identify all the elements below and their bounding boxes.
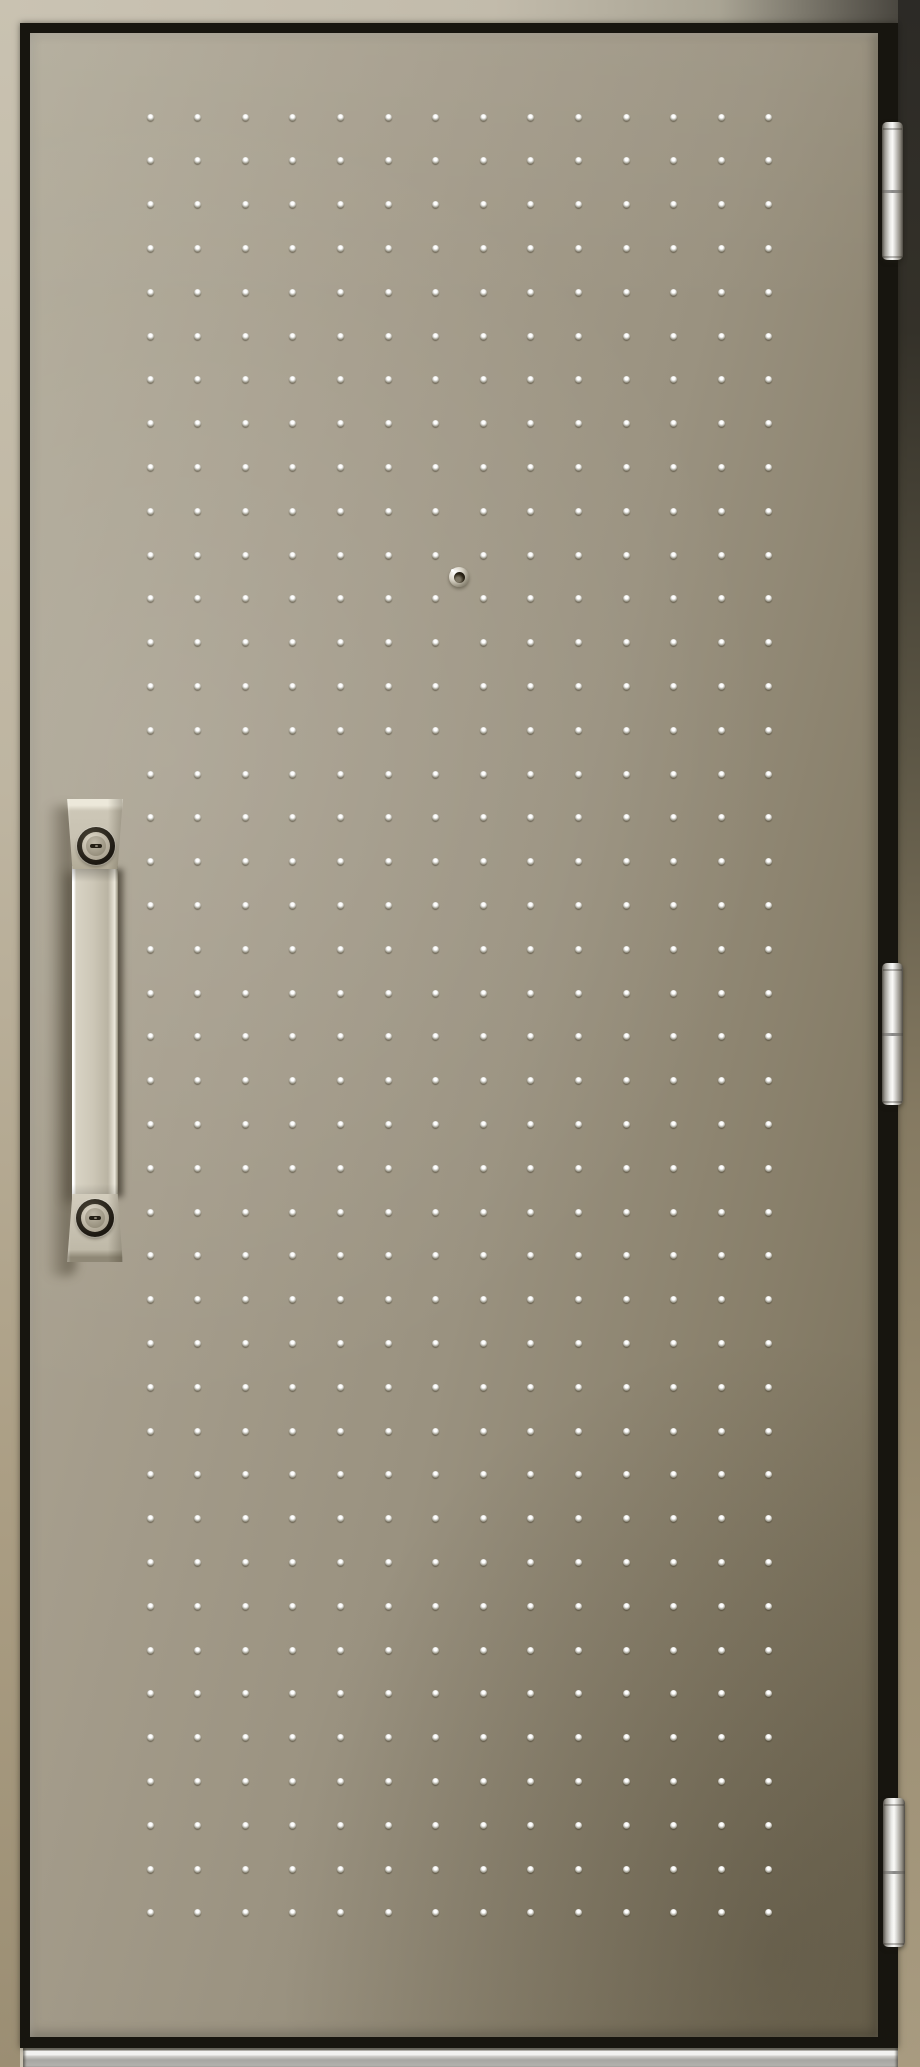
keyhole-slot	[90, 844, 102, 848]
hinge-bottom	[883, 1798, 905, 1947]
door-leaf	[20, 23, 898, 2048]
door-photo	[0, 0, 920, 2067]
keyhole-slot	[89, 1216, 101, 1220]
door-viewer-peephole[interactable]	[449, 567, 469, 587]
lock-bezel	[81, 1204, 109, 1232]
lock-face	[85, 1208, 105, 1228]
hinge-top	[882, 122, 903, 260]
door-frame-left-jamb	[0, 0, 20, 2067]
door-frame-head	[0, 0, 898, 23]
pull-handle-grip-bar[interactable]	[72, 866, 118, 1200]
bottom-lock-cylinder[interactable]	[76, 1199, 114, 1237]
lock-face	[86, 836, 106, 856]
lock-bezel	[82, 832, 110, 860]
viewer-lens	[454, 572, 465, 583]
hinge-middle	[882, 963, 903, 1105]
door-surface	[30, 33, 878, 2037]
threshold-sill	[23, 2048, 898, 2067]
top-lock-cylinder[interactable]	[77, 827, 115, 865]
